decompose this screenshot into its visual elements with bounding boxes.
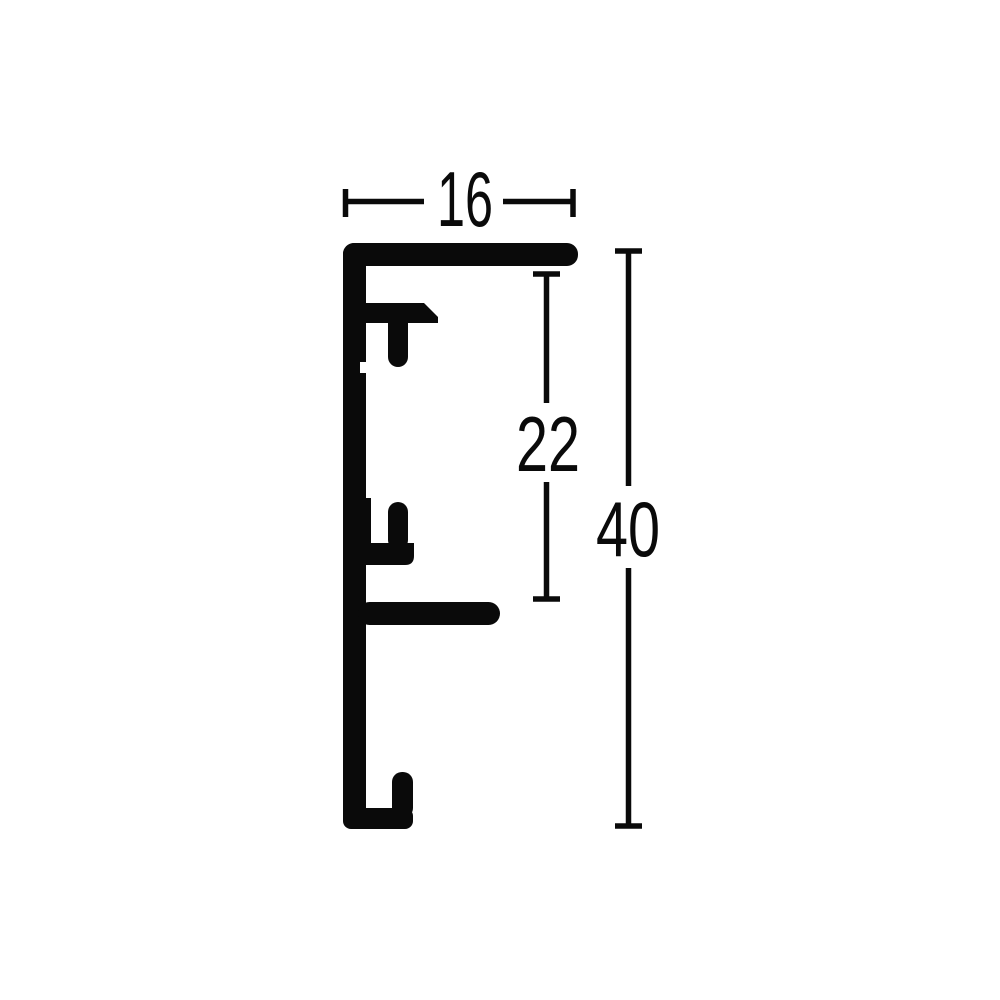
profile-bottom-hook	[392, 772, 413, 818]
profile-top-flange	[343, 243, 578, 266]
technical-drawing-page: 16 22 40	[0, 0, 1000, 1000]
profile-cross-section	[343, 243, 578, 829]
dim-width-label: 16	[437, 155, 493, 243]
dim-middle-height-label: 22	[516, 400, 580, 488]
profile-vertical-web	[343, 243, 366, 829]
profile-middle-shelf	[366, 543, 414, 565]
profile-middle-finger	[388, 502, 408, 550]
profile-drawing: 16 22 40	[0, 0, 1000, 1000]
profile-middle-step	[366, 498, 371, 545]
profile-edge-notch	[360, 362, 367, 373]
profile-upper-tab-stub	[388, 313, 408, 367]
dim-total-height-label: 40	[596, 485, 660, 573]
profile-middle-arm	[358, 602, 500, 625]
